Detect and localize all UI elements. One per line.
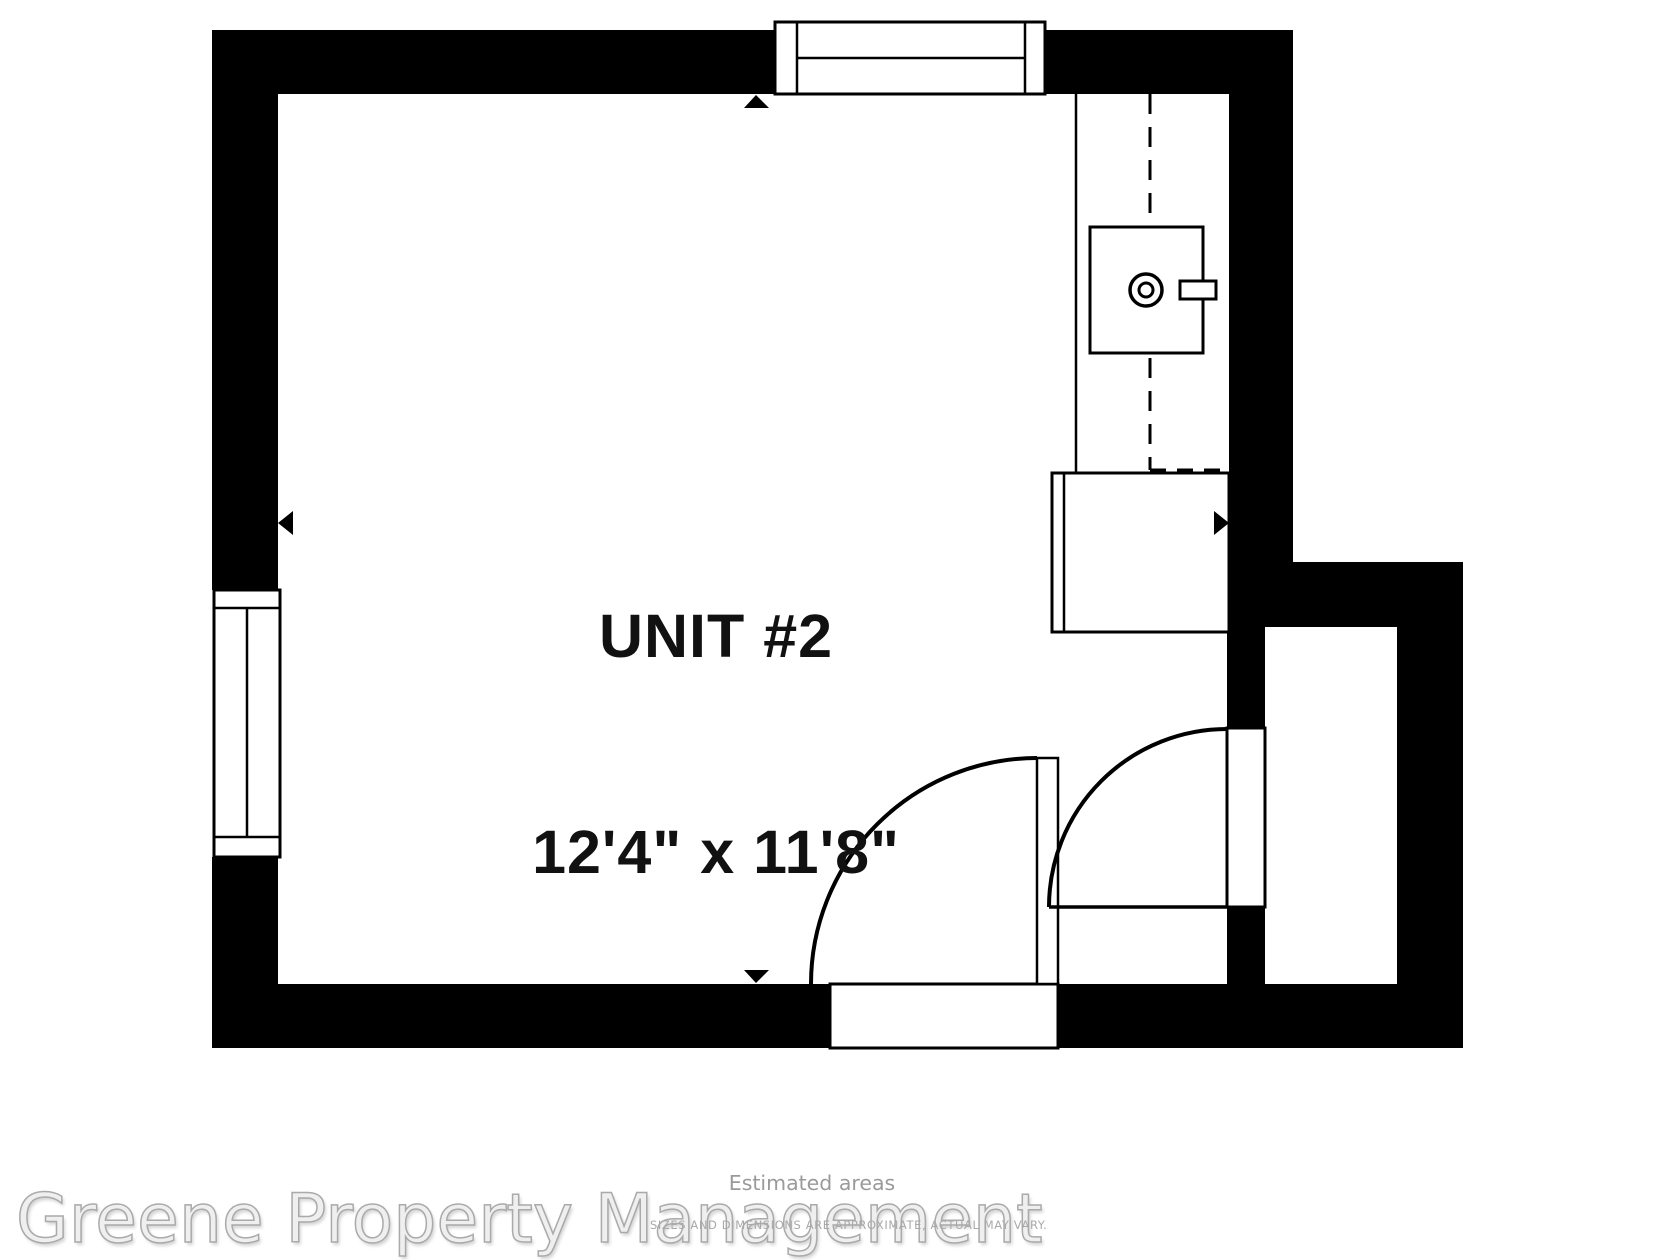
notes-title: Estimated areas <box>462 1169 1162 1199</box>
wall-top-left <box>212 30 775 94</box>
fixture-knob-inner-icon <box>1139 283 1153 297</box>
wall-left-upper <box>212 30 278 590</box>
door-swing-arc-closet <box>1049 729 1227 907</box>
doorway-closet <box>1227 728 1265 907</box>
disclaimer-text: SIZES AND DIMENSIONS ARE APPROXIMATE, AC… <box>650 1218 1047 1232</box>
unit-dimensions: 12'4" x 11'8" <box>366 816 1066 888</box>
marker-left-icon <box>278 511 293 535</box>
fixture-square <box>1090 227 1216 353</box>
window-top-icon <box>775 22 1045 94</box>
counter <box>1052 473 1229 632</box>
unit-info: UNIT #2 12'4" x 11'8" <box>366 456 1066 1032</box>
wall-closet-top-jog <box>1229 562 1463 627</box>
closet-area-details <box>1052 94 1229 632</box>
wall-bottom-right <box>1058 984 1463 1048</box>
wall-right-upper <box>1229 30 1293 562</box>
unit-label: UNIT #2 <box>366 600 1066 672</box>
estimated-areas-notes: Estimated areas GLA FLOOR 1: 201 sq. ft,… <box>462 1110 1162 1260</box>
marker-top-icon <box>744 95 769 108</box>
fixture-handle-icon <box>1180 281 1216 299</box>
wall-closet-partition-lower <box>1227 907 1265 984</box>
window-left-icon <box>214 590 280 857</box>
floorplan-page: UNIT #2 12'4" x 11'8" Greene Property Ma… <box>0 0 1680 1260</box>
wall-closet-partition-upper <box>1227 627 1265 728</box>
